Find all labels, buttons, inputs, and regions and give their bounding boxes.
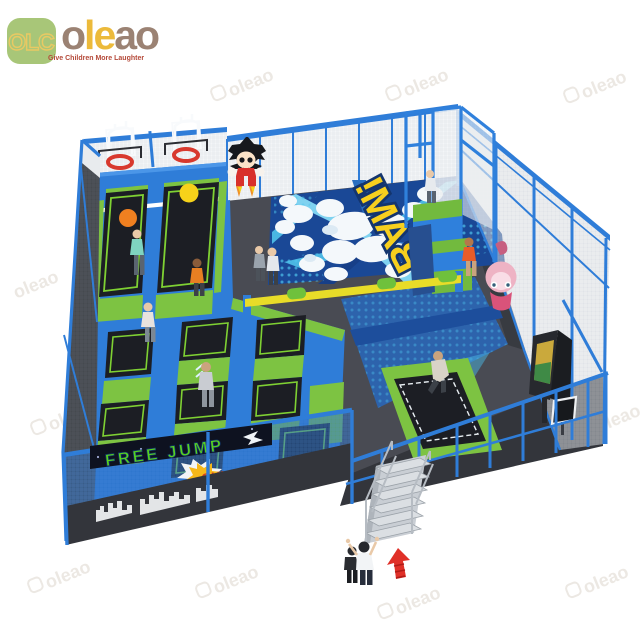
- svg-text:Give Children More Laughter: Give Children More Laughter: [48, 55, 144, 62]
- svg-text:OLC: OLC: [8, 29, 54, 55]
- svg-text:oleao: oleao: [61, 12, 159, 58]
